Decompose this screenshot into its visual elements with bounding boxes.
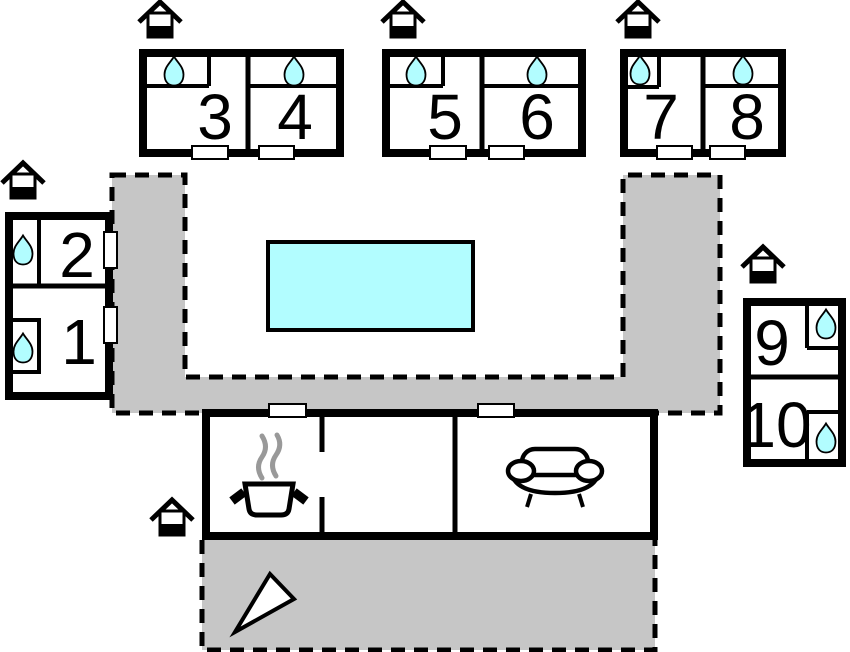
room-7-label: 7 xyxy=(643,85,679,149)
floor-plan-drawing xyxy=(0,0,850,652)
house-entrance-icon xyxy=(151,500,193,535)
house-entrance-icon xyxy=(139,2,181,37)
main-building xyxy=(206,404,654,536)
sofa-armrest xyxy=(508,461,534,481)
room-9-label: 9 xyxy=(754,311,790,375)
house-entrance-icon xyxy=(617,2,659,37)
house-entrance-icon xyxy=(2,163,44,198)
room-3-label: 3 xyxy=(197,85,233,149)
kitchen-door xyxy=(269,404,306,417)
room-4-label: 4 xyxy=(277,85,313,149)
house-entrance-icon xyxy=(742,247,784,282)
room-6-label: 6 xyxy=(519,85,555,149)
sofa-armrest xyxy=(576,461,602,481)
room-10-label: 10 xyxy=(740,393,811,457)
swimming-pool xyxy=(268,242,473,330)
room-1-door xyxy=(104,307,117,343)
room-1-label: 1 xyxy=(61,310,97,374)
floor-plan: 1 2 3 4 5 6 7 8 9 10 xyxy=(0,0,850,652)
room-2-label: 2 xyxy=(59,223,95,287)
room-8-label: 8 xyxy=(729,85,765,149)
pot-body xyxy=(245,484,293,515)
room-2-door xyxy=(104,232,117,268)
living-room-door xyxy=(478,404,514,417)
house-entrance-icon xyxy=(382,2,424,37)
room-5-label: 5 xyxy=(427,85,463,149)
